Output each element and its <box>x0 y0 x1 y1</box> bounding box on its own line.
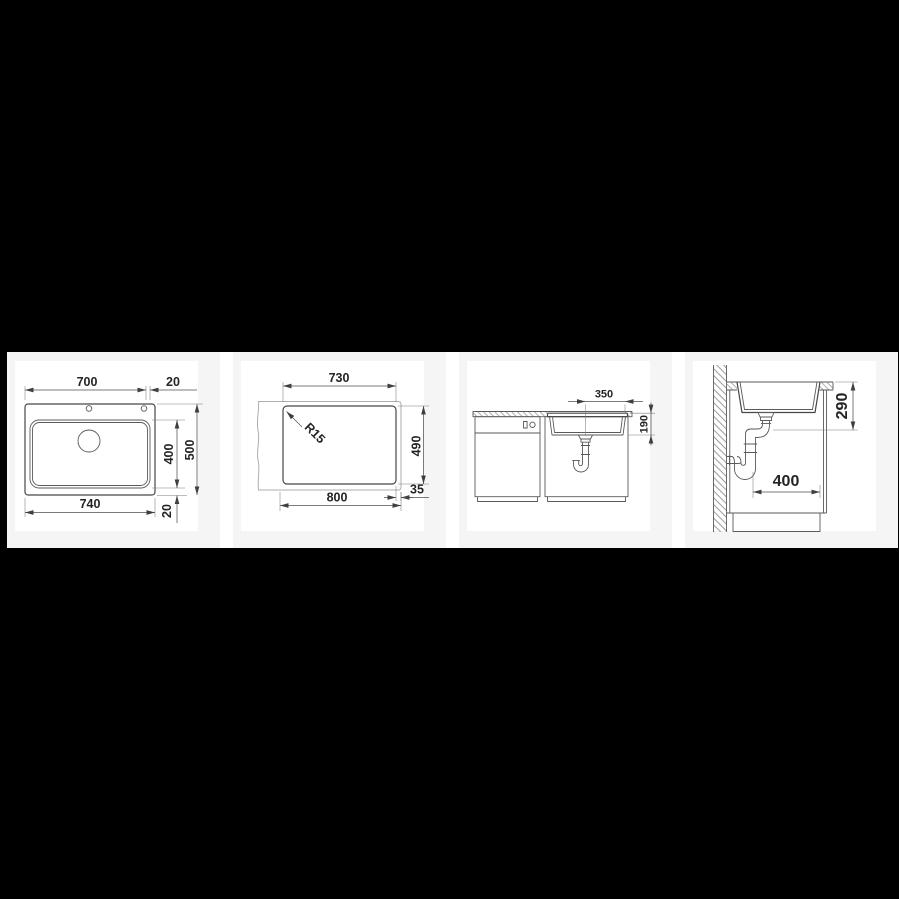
worktop-cutout-drawing: R15 730 490 800 35 <box>233 352 446 548</box>
dim-20-bottom-label: 20 <box>160 504 174 518</box>
sink-top-view-drawing: 700 20 400 500 740 <box>7 352 220 548</box>
dim-290-label: 290 <box>834 393 851 420</box>
wall <box>714 365 727 532</box>
dim-400-label: 400 <box>162 444 176 465</box>
panel-side-section[interactable]: 290 400 <box>685 352 898 548</box>
dim-400-label: 400 <box>773 473 800 490</box>
panel-worktop-cutout[interactable]: R15 730 490 800 35 <box>233 352 446 548</box>
dim-350-label: 350 <box>595 389 613 401</box>
front-section-drawing: 350 190 <box>459 352 672 548</box>
panel-front-section[interactable]: 350 190 <box>459 352 672 548</box>
dim-740-label: 740 <box>80 497 101 511</box>
panel-sink-top-view[interactable]: 700 20 400 500 740 <box>7 352 220 548</box>
dim-700-label: 700 <box>77 375 98 389</box>
product-image-strip: 700 20 400 500 740 <box>7 352 898 548</box>
dim-190-label: 190 <box>639 415 651 433</box>
dim-500-label: 500 <box>183 440 197 461</box>
image-area <box>467 361 650 531</box>
dim-800-label: 800 <box>327 491 348 505</box>
dim-35-label: 35 <box>410 483 424 497</box>
dim-20-top-label: 20 <box>166 375 180 389</box>
page-background: { "colors": { "page_bg": "#000000", "gap… <box>0 0 899 899</box>
side-section-drawing: 290 400 <box>685 352 898 548</box>
dim-490-label: 490 <box>410 436 424 457</box>
dim-730-label: 730 <box>329 371 350 385</box>
